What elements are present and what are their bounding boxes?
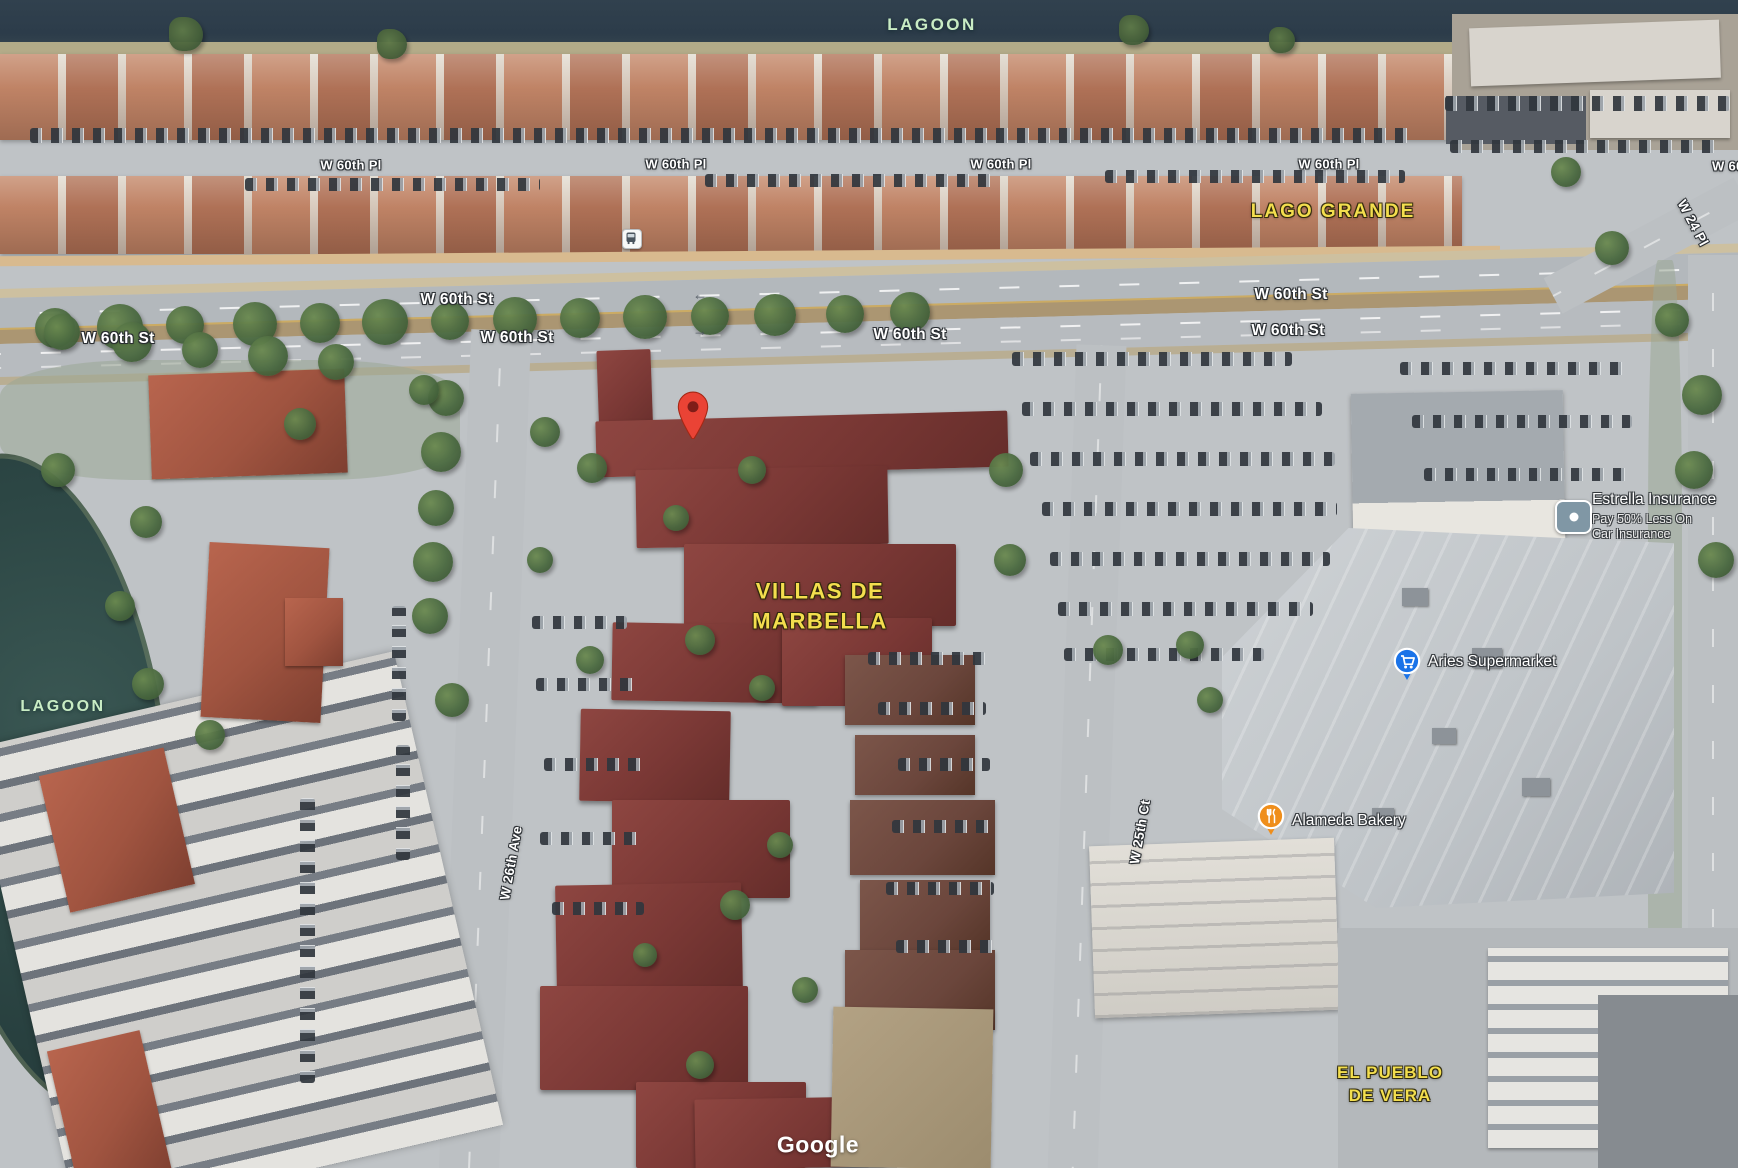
area-label-line: EL PUEBLO — [1337, 1062, 1443, 1085]
parked-cars-row — [552, 902, 644, 915]
parked-cars-row — [245, 178, 540, 191]
street-label: W 60th Pl — [645, 157, 706, 172]
villas-building-roof — [579, 709, 731, 804]
tree — [530, 417, 560, 447]
tree — [1551, 157, 1581, 187]
buildings-southeast — [1338, 928, 1738, 1168]
parked-cars-row — [886, 882, 994, 895]
tree — [41, 453, 75, 487]
tree — [418, 490, 454, 526]
tree — [1675, 451, 1713, 489]
street-label: W 60th St — [81, 330, 154, 348]
tree — [132, 668, 164, 700]
tree — [560, 298, 600, 338]
strip-mall-building — [1351, 390, 1566, 542]
map-pin-icon[interactable] — [677, 391, 709, 444]
restaurant-icon[interactable] — [1257, 802, 1285, 843]
parked-cars-row — [1042, 502, 1337, 516]
tree — [686, 1051, 714, 1079]
tree — [248, 336, 288, 376]
tree — [409, 375, 439, 405]
bakery-building-roof — [1089, 838, 1340, 1018]
building-roof — [850, 800, 995, 875]
townhouse-rows-southwest — [0, 651, 503, 1168]
area-label-line: VILLAS DE — [752, 576, 887, 606]
street-label: W 60th St — [1251, 322, 1324, 340]
ad-badge-dot — [1569, 513, 1578, 522]
parked-cars-row — [544, 758, 649, 771]
tree — [754, 294, 796, 336]
tree — [527, 547, 553, 573]
poi-sublabel: Pay 50% Less On — [1592, 512, 1692, 526]
parked-cars-row — [1105, 170, 1405, 183]
tree — [720, 890, 750, 920]
parked-cars-row — [396, 745, 410, 860]
poi-label-alameda-bakery[interactable]: Alameda Bakery — [1292, 812, 1406, 830]
parked-cars-row — [30, 128, 1415, 143]
tree — [685, 625, 715, 655]
parked-cars-row — [1412, 415, 1632, 428]
street-label: W 60th St — [480, 329, 553, 347]
street-label: W 60th St — [1254, 286, 1327, 304]
tree — [318, 344, 354, 380]
parked-cars-row — [532, 616, 627, 629]
parked-cars-row — [1450, 140, 1720, 153]
tree — [1698, 542, 1734, 578]
parked-cars-row — [1445, 96, 1730, 111]
parked-cars-row — [878, 702, 986, 715]
villas-building-roof — [555, 882, 743, 993]
tree — [195, 720, 225, 750]
tree — [362, 299, 408, 345]
villas-building-roof — [540, 986, 748, 1090]
tree — [1197, 687, 1223, 713]
tree — [1176, 631, 1204, 659]
area-label-lago-grande: LAGO GRANDE — [1251, 199, 1416, 225]
parked-cars-row — [1050, 552, 1330, 566]
parked-cars-row — [705, 174, 995, 187]
road-arrow-east: → — [693, 323, 708, 340]
parked-cars-row — [868, 652, 986, 665]
water-label-lagoon-west: LAGOON — [20, 698, 105, 716]
tree — [421, 432, 461, 472]
tree — [1655, 303, 1689, 337]
parked-cars-row — [392, 606, 406, 721]
bus-icon[interactable] — [622, 229, 642, 249]
street-label: W 60th Pl — [1712, 159, 1738, 174]
water-label-lagoon-north: LAGOON — [887, 15, 977, 35]
poi-label-aries-supermarket[interactable]: Aries Supermarket — [1428, 653, 1556, 671]
shopping-cart-icon[interactable] — [1393, 647, 1421, 688]
tree — [826, 295, 864, 333]
tree — [738, 456, 766, 484]
townhouse-row-south — [0, 176, 1462, 254]
tree — [1093, 635, 1123, 665]
parked-cars-row — [892, 820, 992, 833]
street-label: W 60th St — [420, 291, 493, 309]
tree — [576, 646, 604, 674]
tree — [130, 506, 162, 538]
street-label: W 60th Pl — [1298, 157, 1359, 172]
google-watermark: Google — [777, 1132, 859, 1159]
parked-cars-row — [300, 798, 315, 1083]
street-label: W 60th Pl — [970, 157, 1031, 172]
parked-cars-row — [1012, 352, 1292, 366]
tree — [182, 332, 218, 368]
poi-label-estrella-insurance[interactable]: Estrella Insurance — [1592, 491, 1716, 509]
palm-tree — [169, 17, 203, 51]
tree — [300, 303, 340, 343]
tree — [413, 542, 453, 582]
building-roof — [285, 598, 343, 666]
tree — [577, 453, 607, 483]
tree — [1682, 375, 1722, 415]
tree — [767, 832, 793, 858]
tree — [1595, 231, 1629, 265]
parked-cars-row — [536, 678, 636, 691]
tree — [435, 683, 469, 717]
area-label-line: MARBELLA — [752, 606, 887, 636]
map-canvas[interactable]: W 60th Pl W 60th Pl W 60th Pl W 60th Pl … — [0, 0, 1738, 1168]
tree — [44, 314, 80, 350]
building-roof — [148, 369, 348, 480]
parked-cars-row — [898, 758, 990, 771]
parked-cars-row — [1022, 402, 1322, 416]
parked-cars-row — [540, 832, 640, 845]
tree — [633, 943, 657, 967]
tree — [284, 408, 316, 440]
tree — [792, 977, 818, 1003]
palm-tree — [1119, 15, 1149, 45]
palm-tree — [1269, 27, 1295, 53]
parked-cars-row — [1030, 452, 1335, 466]
tree — [994, 544, 1026, 576]
w-25th-ct-road — [1048, 344, 1127, 1168]
parked-cars-row — [1400, 362, 1625, 375]
tree — [412, 598, 448, 634]
tree — [989, 453, 1023, 487]
road-arrow-west: ← — [693, 287, 708, 304]
ad-badge-icon[interactable] — [1555, 500, 1592, 534]
tree — [105, 591, 135, 621]
street-label: W 60th Pl — [320, 158, 381, 173]
parked-cars-row — [1058, 602, 1313, 616]
condo-buildings-northeast — [1452, 14, 1738, 150]
poi-sublabel: Car Insurance — [1592, 527, 1671, 541]
palm-tree — [377, 29, 407, 59]
area-label-line: DE VERA — [1337, 1085, 1443, 1108]
tree — [623, 295, 667, 339]
street-label: W 60th St — [873, 326, 946, 344]
area-label-villas-de-marbella: VILLAS DE MARBELLA — [752, 576, 887, 635]
parked-cars-row — [1424, 468, 1634, 481]
tree — [749, 675, 775, 701]
parked-cars-row — [896, 940, 994, 953]
area-label-el-pueblo-de-vera: EL PUEBLO DE VERA — [1337, 1062, 1443, 1108]
tree — [663, 505, 689, 531]
